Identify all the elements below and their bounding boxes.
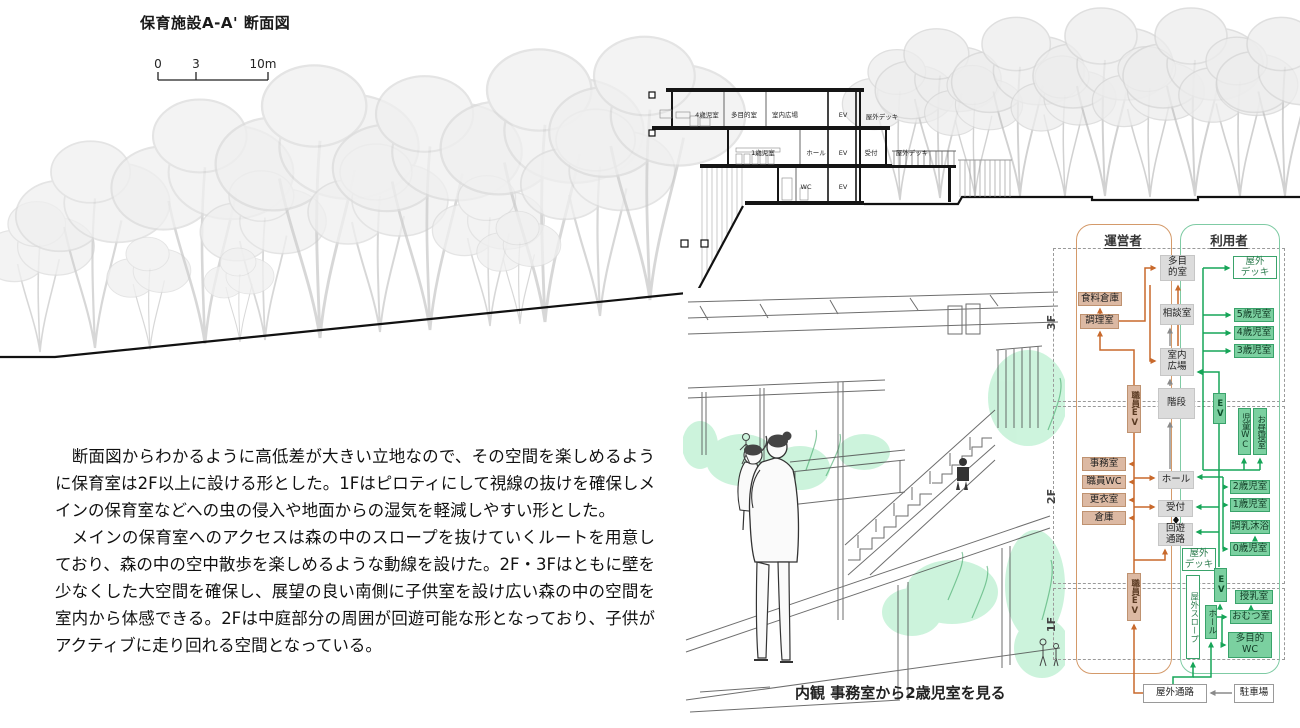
description-text: 断面図からわかるように高低差が大きい立地なので、その空間を楽しめるように保育室は… bbox=[55, 443, 655, 659]
room-uketsuke: 受付 bbox=[1158, 500, 1193, 517]
svg-text:0: 0 bbox=[154, 57, 162, 71]
room-age3: 3歳児室 bbox=[1234, 344, 1274, 358]
room-tamokuteki-wc: 多目的 WC bbox=[1228, 632, 1272, 658]
room-sodanshitsu: 相談室 bbox=[1160, 304, 1194, 325]
room-kaiyu-tsuro: 回遊 通路 bbox=[1158, 523, 1193, 546]
room-omutsu: おむつ室 bbox=[1230, 610, 1272, 624]
svg-text:受付: 受付 bbox=[865, 148, 879, 157]
presentation-board: 0 3 10m bbox=[0, 0, 1300, 728]
room-jido-wc: 児童WC bbox=[1238, 408, 1251, 455]
circulation-diagram: 運営者 利用者 3F 2F 1F bbox=[1040, 0, 1300, 728]
room-chushajo: 駐車場 bbox=[1234, 684, 1274, 703]
room-okugai-slope: 屋外スロープ bbox=[1186, 575, 1200, 659]
svg-text:3: 3 bbox=[192, 57, 200, 71]
svg-text:WC: WC bbox=[801, 183, 812, 191]
slope-hatch bbox=[702, 168, 742, 283]
room-jimushitsu: 事務室 bbox=[1082, 457, 1126, 471]
forest-left bbox=[0, 37, 745, 352]
room-chorishitsu: 調理室 bbox=[1080, 314, 1119, 329]
room-junyu: 授乳室 bbox=[1235, 590, 1273, 604]
svg-text:10m: 10m bbox=[250, 57, 277, 71]
svg-text:EV: EV bbox=[839, 149, 848, 157]
room-ev-lower: EV bbox=[1214, 568, 1227, 602]
room-age5: 5歳児室 bbox=[1234, 308, 1274, 322]
room-koishitsu: 更衣室 bbox=[1082, 493, 1126, 507]
svg-text:ホール: ホール bbox=[806, 149, 826, 157]
room-age0: 0歳児室 bbox=[1230, 542, 1270, 556]
svg-text:EV: EV bbox=[839, 183, 848, 191]
svg-text:屋外デッキ: 屋外デッキ bbox=[896, 148, 929, 157]
room-age4: 4歳児室 bbox=[1234, 326, 1274, 340]
svg-text:室内広場: 室内広場 bbox=[772, 110, 799, 119]
room-hall-1f: ホール bbox=[1205, 605, 1217, 639]
perspective-caption: 内観 事務室から2歳児室を見る bbox=[795, 682, 1006, 703]
room-kaidan: 階段 bbox=[1158, 388, 1195, 419]
room-ev-upper: EV bbox=[1213, 393, 1226, 424]
svg-text:屋外デッキ: 屋外デッキ bbox=[866, 112, 899, 121]
room-okugai-deck-3f: 屋外 デッキ bbox=[1233, 256, 1277, 279]
room-shitsunai-hiroba: 室内 広場 bbox=[1160, 348, 1194, 376]
room-okugai-deck-2f: 屋外 デッキ bbox=[1182, 548, 1216, 571]
user-header: 利用者 bbox=[1180, 230, 1278, 249]
room-ohirune: お昼寝室 bbox=[1253, 408, 1267, 455]
room-okugai-tsuro: 屋外通路 bbox=[1143, 684, 1207, 703]
room-chonyu: 調乳沐浴 bbox=[1230, 520, 1270, 534]
operator-header: 運営者 bbox=[1076, 230, 1170, 249]
room-soko: 倉庫 bbox=[1082, 511, 1126, 525]
svg-text:1歳児室: 1歳児室 bbox=[751, 148, 775, 157]
room-shokuin-ev-lower: 職員EV bbox=[1127, 573, 1141, 621]
perspective-sketch bbox=[683, 288, 1065, 722]
page-title: 保育施設A-A' 断面図 bbox=[140, 12, 290, 33]
ground-deck bbox=[958, 160, 1012, 197]
room-shokuryo-soko: 食料倉庫 bbox=[1078, 292, 1122, 306]
room-age2: 2歳児室 bbox=[1230, 480, 1270, 494]
description-paragraph-2: メインの保育室へのアクセスは森の中のスロープを抜けていくルートを用意しており、森… bbox=[55, 524, 655, 659]
scale-bar: 0 3 10m bbox=[154, 57, 276, 80]
description-paragraph-1: 断面図からわかるように高低差が大きい立地なので、その空間を楽しめるように保育室は… bbox=[55, 443, 655, 524]
room-shokuin-wc: 職員WC bbox=[1082, 475, 1126, 489]
room-age1: 1歳児室 bbox=[1230, 498, 1270, 512]
room-shokuin-ev-upper: 職員EV bbox=[1127, 385, 1141, 433]
svg-text:4歳児室: 4歳児室 bbox=[695, 110, 719, 119]
svg-text:EV: EV bbox=[839, 111, 848, 119]
room-tamokuteki: 多目 的室 bbox=[1160, 255, 1195, 281]
svg-text:多目的室: 多目的室 bbox=[731, 110, 758, 119]
room-hall-2f: ホール bbox=[1158, 471, 1194, 489]
